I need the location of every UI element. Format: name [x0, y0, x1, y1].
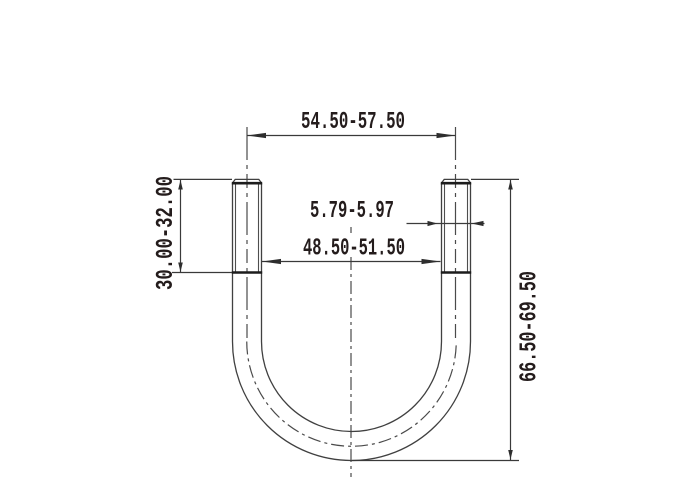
- svg-text:48.50-51.50: 48.50-51.50: [303, 236, 405, 263]
- svg-text:5.79-5.97: 5.79-5.97: [310, 198, 394, 225]
- svg-text:54.50-57.50: 54.50-57.50: [301, 109, 405, 136]
- svg-text:66.50-69.50: 66.50-69.50: [517, 271, 544, 382]
- svg-text:30.00-32.00: 30.00-32.00: [153, 176, 180, 290]
